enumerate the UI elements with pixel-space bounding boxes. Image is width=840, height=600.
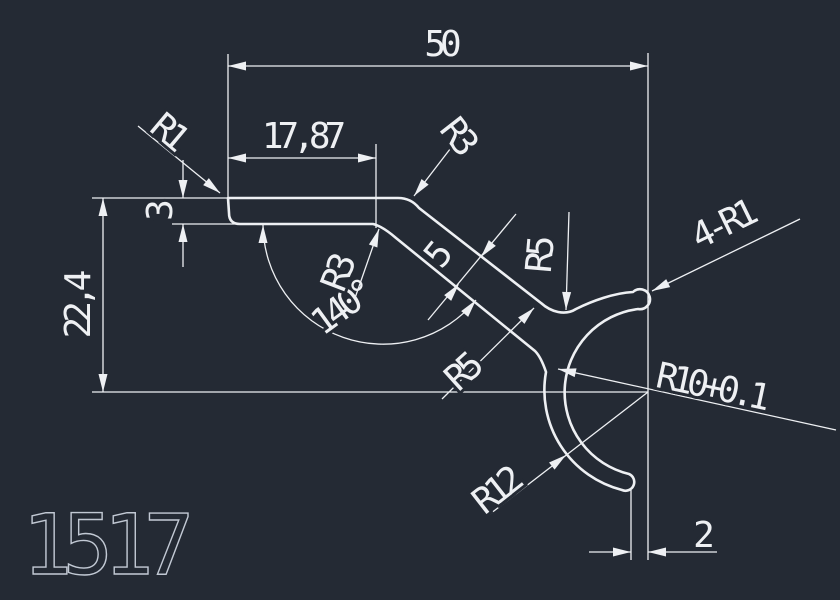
radius-label-r3-outer[interactable]: R3 xyxy=(410,110,484,199)
part-number: 1517 xyxy=(22,496,189,594)
dim-text-5: 5 xyxy=(416,235,460,276)
label-text-r5-upper: R5 xyxy=(519,236,563,274)
label-text-r5-lower: R5 xyxy=(437,346,490,400)
arrowhead xyxy=(259,225,268,243)
dimension-3[interactable]: 3 xyxy=(140,160,188,267)
dim-text-3: 3 xyxy=(140,202,181,221)
dim-text-2: 2 xyxy=(693,515,712,556)
label-text-r12: R12 xyxy=(465,459,530,522)
label-text-r1: R1 xyxy=(142,105,196,159)
arrowhead xyxy=(648,548,666,557)
arrowhead xyxy=(179,180,188,198)
arrowhead xyxy=(650,279,670,295)
cad-canvas[interactable]: 50 17,87 22,4 3 2 5 xyxy=(0,0,840,600)
profile-path xyxy=(228,198,650,491)
radius-label-r3-inner[interactable]: R3 xyxy=(314,228,384,298)
arrowhead xyxy=(630,62,648,71)
arrowhead xyxy=(410,179,428,199)
arrowhead xyxy=(562,292,572,310)
label-text-4-r1: 4-R1 xyxy=(685,192,763,258)
cad-drawing-area[interactable]: 50 17,87 22,4 3 2 5 xyxy=(0,0,840,600)
label-text-r3-outer: R3 xyxy=(431,110,485,163)
dimension-22-4[interactable]: 22,4 xyxy=(58,198,108,392)
arrowhead xyxy=(461,297,479,317)
arrowhead xyxy=(99,374,108,392)
dim-text-50: 50 xyxy=(424,24,460,65)
label-text-r10: R10+0.1 xyxy=(652,355,772,419)
profile-outline[interactable] xyxy=(228,198,650,491)
arrowhead xyxy=(99,198,108,216)
angle-dimension-140[interactable]: 140° xyxy=(259,225,480,344)
dimension-50[interactable]: 50 xyxy=(228,24,648,71)
dimension-2[interactable]: 2 xyxy=(589,515,717,557)
arrowhead xyxy=(369,228,383,248)
arrowhead xyxy=(228,154,246,163)
arrowhead xyxy=(358,154,376,163)
radius-label-r5-upper[interactable]: R5 xyxy=(519,212,571,310)
arrowhead xyxy=(613,548,631,557)
dimension-17-87[interactable]: 17,87 xyxy=(228,116,376,163)
radius-label-4-r1[interactable]: 4-R1 xyxy=(650,192,800,295)
angle-arc xyxy=(263,225,476,344)
dim-text-17-87: 17,87 xyxy=(262,116,344,157)
arrowhead xyxy=(179,224,188,242)
arrowhead xyxy=(228,62,246,71)
radius-label-r12[interactable]: R12 xyxy=(465,392,648,523)
dim-text-22-4: 22,4 xyxy=(58,271,99,338)
radius-label-r5-lower[interactable]: R5 xyxy=(437,305,537,399)
